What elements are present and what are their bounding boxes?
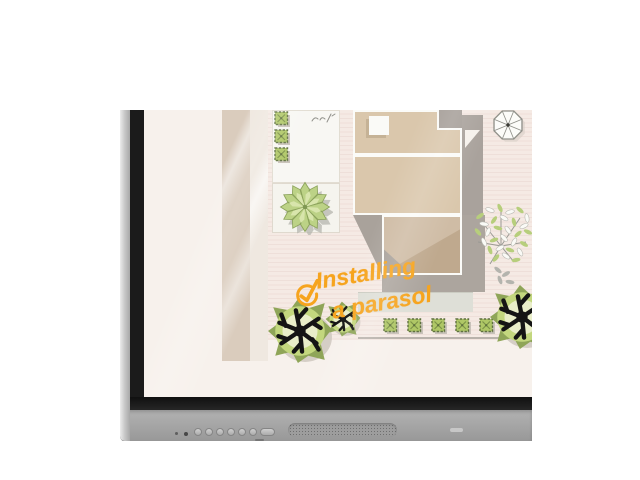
box-hedge-row bbox=[455, 318, 471, 334]
roof-notch bbox=[437, 110, 462, 130]
power-led-dot bbox=[184, 432, 188, 436]
tree-foliage bbox=[470, 202, 532, 288]
control-button-1[interactable] bbox=[194, 428, 202, 436]
skylight bbox=[369, 116, 389, 135]
button-marker-line bbox=[255, 439, 264, 441]
bottom-bezel bbox=[120, 410, 532, 441]
star-plant bbox=[277, 179, 333, 235]
box-hedge-row bbox=[431, 318, 447, 334]
house-room-middle bbox=[353, 155, 462, 215]
speaker-grille bbox=[288, 423, 397, 437]
control-button-4[interactable] bbox=[227, 428, 235, 436]
ir-sensor-dot bbox=[175, 432, 178, 435]
screen-frame-bottom bbox=[130, 397, 532, 410]
interactive-display: Installing a parasol bbox=[120, 110, 532, 441]
handwritten-scribble-icon bbox=[310, 112, 336, 124]
control-button-wide[interactable] bbox=[260, 428, 275, 436]
touchscreen[interactable]: Installing a parasol bbox=[144, 110, 532, 397]
box-hedge-column bbox=[274, 111, 290, 127]
round-bush-right bbox=[489, 284, 532, 350]
control-button-2[interactable] bbox=[205, 428, 213, 436]
control-button-5[interactable] bbox=[238, 428, 246, 436]
wooden-deck-band-light bbox=[250, 110, 268, 361]
control-button-6[interactable] bbox=[249, 428, 257, 436]
box-hedge-row bbox=[407, 318, 423, 334]
device-side-edge bbox=[120, 110, 130, 441]
box-hedge-column bbox=[274, 147, 290, 163]
box-hedge-row bbox=[383, 318, 399, 334]
screen-frame-left bbox=[130, 110, 144, 410]
product-photo-canvas: Installing a parasol bbox=[0, 0, 640, 480]
control-button-3[interactable] bbox=[216, 428, 224, 436]
box-hedge-column bbox=[274, 129, 290, 145]
wooden-deck-band bbox=[222, 110, 250, 361]
control-button-row bbox=[194, 428, 275, 436]
brand-logo-plate bbox=[450, 428, 463, 432]
parasol-icon bbox=[491, 110, 525, 142]
